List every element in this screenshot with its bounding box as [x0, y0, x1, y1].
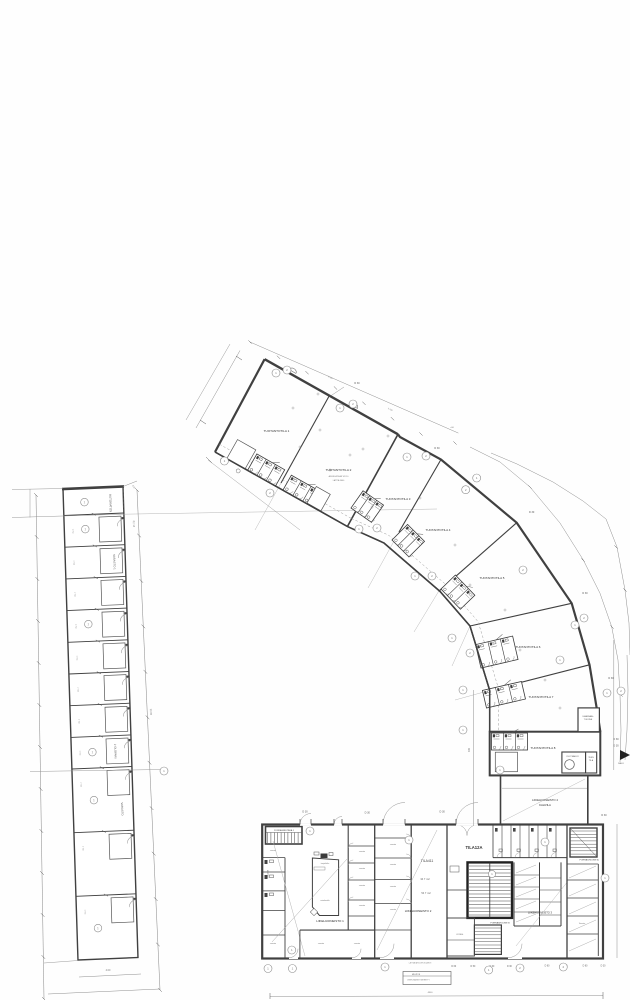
- svg-text:varasto: varasto: [390, 885, 396, 888]
- svg-text:varasto: varasto: [354, 942, 360, 945]
- svg-text:D 30: D 30: [613, 745, 619, 748]
- svg-text:OVIEN KARMIT SIIRRETTY: OVIEN KARMIT SIIRRETTY: [407, 979, 431, 982]
- svg-text:varasto: varasto: [390, 908, 396, 911]
- svg-text:D 30: D 30: [601, 814, 607, 817]
- svg-text:KONEH.: KONEH.: [456, 934, 464, 936]
- svg-text:ASUNLATILAN VR 10: ASUNLATILAN VR 10: [329, 475, 350, 478]
- svg-text:VARASTO: VARASTO: [120, 802, 124, 816]
- svg-text:TUOTANTOTILA 1: TUOTANTOTILA 1: [264, 429, 290, 433]
- svg-text:KEITTIÖ: KEITTIÖ: [266, 870, 269, 878]
- svg-text:2 OLOPARI: 2 OLOPARI: [113, 744, 117, 759]
- svg-text:tarjoilutila: tarjoilutila: [321, 862, 330, 865]
- svg-text:MUUTOS: MUUTOS: [412, 974, 421, 976]
- svg-text:TOKONE: TOKONE: [584, 719, 593, 721]
- svg-text:02 13: 02 13: [132, 521, 136, 528]
- svg-text:465: 465: [468, 747, 471, 752]
- svg-text:D 30: D 30: [601, 966, 607, 968]
- svg-text:PALO: PALO: [618, 762, 624, 765]
- svg-text:varasto: varasto: [359, 904, 365, 907]
- svg-text:TUOTANTOTILA 2: TUOTANTOTILA 2: [326, 468, 352, 472]
- svg-text:4.00: 4.00: [106, 969, 111, 972]
- svg-text:Varasto: Varasto: [579, 922, 585, 925]
- svg-text:2 750: 2 750: [75, 656, 77, 661]
- svg-text:LIIKEHUONEISTO 2: LIIKEHUONEISTO 2: [405, 909, 432, 913]
- svg-text:TUOTANTOTILA 4: TUOTANTOTILA 4: [426, 528, 451, 532]
- svg-text:34 7 m2: 34 7 m2: [420, 877, 430, 881]
- svg-text:D 50: D 50: [470, 966, 476, 968]
- svg-text:D 30: D 30: [302, 811, 308, 814]
- svg-text:D 60: D 60: [583, 966, 589, 968]
- svg-text:2 750: 2 750: [73, 592, 75, 597]
- svg-text:D 30: D 30: [434, 447, 440, 450]
- svg-text:TILA12A: TILA12A: [466, 845, 483, 850]
- svg-text:ÖLJYSÄILIÖ: ÖLJYSÄILIÖ: [566, 755, 579, 758]
- svg-text:PORRASKÄYTÄVÄ 1: PORRASKÄYTÄVÄ 1: [274, 829, 295, 832]
- svg-text:D 60: D 60: [545, 966, 551, 968]
- svg-text:54 7 m2: 54 7 m2: [421, 891, 431, 895]
- svg-text:TUOTANTOTILA 3: TUOTANTOTILA 3: [386, 497, 411, 501]
- svg-text:VARASTO 1: VARASTO 1: [112, 554, 117, 570]
- svg-text:TUOTANTOTILA 8: TUOTANTOTILA 8: [531, 746, 556, 750]
- svg-text:LIIKEHUONEISTO 1: LIIKEHUONEISTO 1: [316, 919, 344, 923]
- svg-text:varasto: varasto: [359, 850, 365, 853]
- svg-text:varasto: varasto: [318, 942, 324, 945]
- svg-text:AUTOKATOS: AUTOKATOS: [108, 494, 113, 512]
- svg-text:varasto: varasto: [270, 942, 276, 945]
- svg-text:2 750: 2 750: [76, 687, 78, 692]
- svg-text:2 750: 2 750: [71, 529, 73, 534]
- svg-text:D 30: D 30: [613, 738, 619, 741]
- svg-text:TUOTANTOTILA 7: TUOTANTOTILA 7: [529, 695, 554, 699]
- svg-text:varasto: varasto: [390, 843, 396, 846]
- svg-text:D 30: D 30: [608, 677, 614, 680]
- svg-text:PORRASHUONE B: PORRASHUONE B: [490, 922, 510, 925]
- svg-text:2 750: 2 750: [77, 719, 79, 724]
- svg-text:PORRASHUONE A: PORRASHUONE A: [579, 859, 599, 862]
- svg-text:2 750: 2 750: [83, 910, 85, 915]
- svg-text:D 30: D 30: [354, 382, 360, 385]
- svg-text:LIIKEHUONEISTO 3: LIIKEHUONEISTO 3: [528, 911, 552, 915]
- svg-text:LATTIA 3600: LATTIA 3600: [333, 479, 345, 482]
- svg-text:D 30: D 30: [507, 966, 513, 968]
- svg-text:TUOTANTOTILA 6: TUOTANTOTILA 6: [516, 645, 541, 649]
- svg-text:asiakastila: asiakastila: [320, 899, 330, 902]
- svg-text:D 30: D 30: [439, 811, 445, 814]
- svg-text:4800: 4800: [428, 992, 434, 994]
- svg-text:LIIKEHUONEISTO 4: LIIKEHUONEISTO 4: [532, 798, 558, 802]
- svg-text:ILMANVAIH-: ILMANVAIH-: [582, 715, 594, 718]
- svg-text:LATTIAKAIVOJEN SIJAINTI: LATTIAKAIVOJEN SIJAINTI: [409, 962, 432, 965]
- svg-text:varasto: varasto: [359, 867, 365, 870]
- svg-text:TUOTANTOTILA 5: TUOTANTOTILA 5: [480, 576, 505, 580]
- svg-text:D 30: D 30: [365, 811, 371, 814]
- svg-text:2 750: 2 750: [74, 624, 76, 629]
- svg-text:TEKN: TEKN: [588, 757, 594, 759]
- svg-text:D 60: D 60: [451, 966, 457, 968]
- svg-text:D 30: D 30: [582, 592, 588, 595]
- svg-text:TILA: TILA: [589, 759, 594, 762]
- svg-text:30 00: 30 00: [149, 709, 153, 716]
- svg-text:KAHVILA: KAHVILA: [539, 803, 551, 807]
- svg-text:2 750: 2 750: [81, 846, 83, 851]
- svg-text:TILA411: TILA411: [421, 859, 434, 863]
- svg-text:D 30: D 30: [529, 511, 535, 514]
- svg-text:varasto: varasto: [390, 863, 396, 866]
- svg-text:varasto: varasto: [359, 884, 365, 887]
- svg-text:2 750: 2 750: [78, 751, 80, 756]
- svg-text:2 750: 2 750: [79, 782, 81, 787]
- svg-text:2 750: 2 750: [72, 561, 74, 566]
